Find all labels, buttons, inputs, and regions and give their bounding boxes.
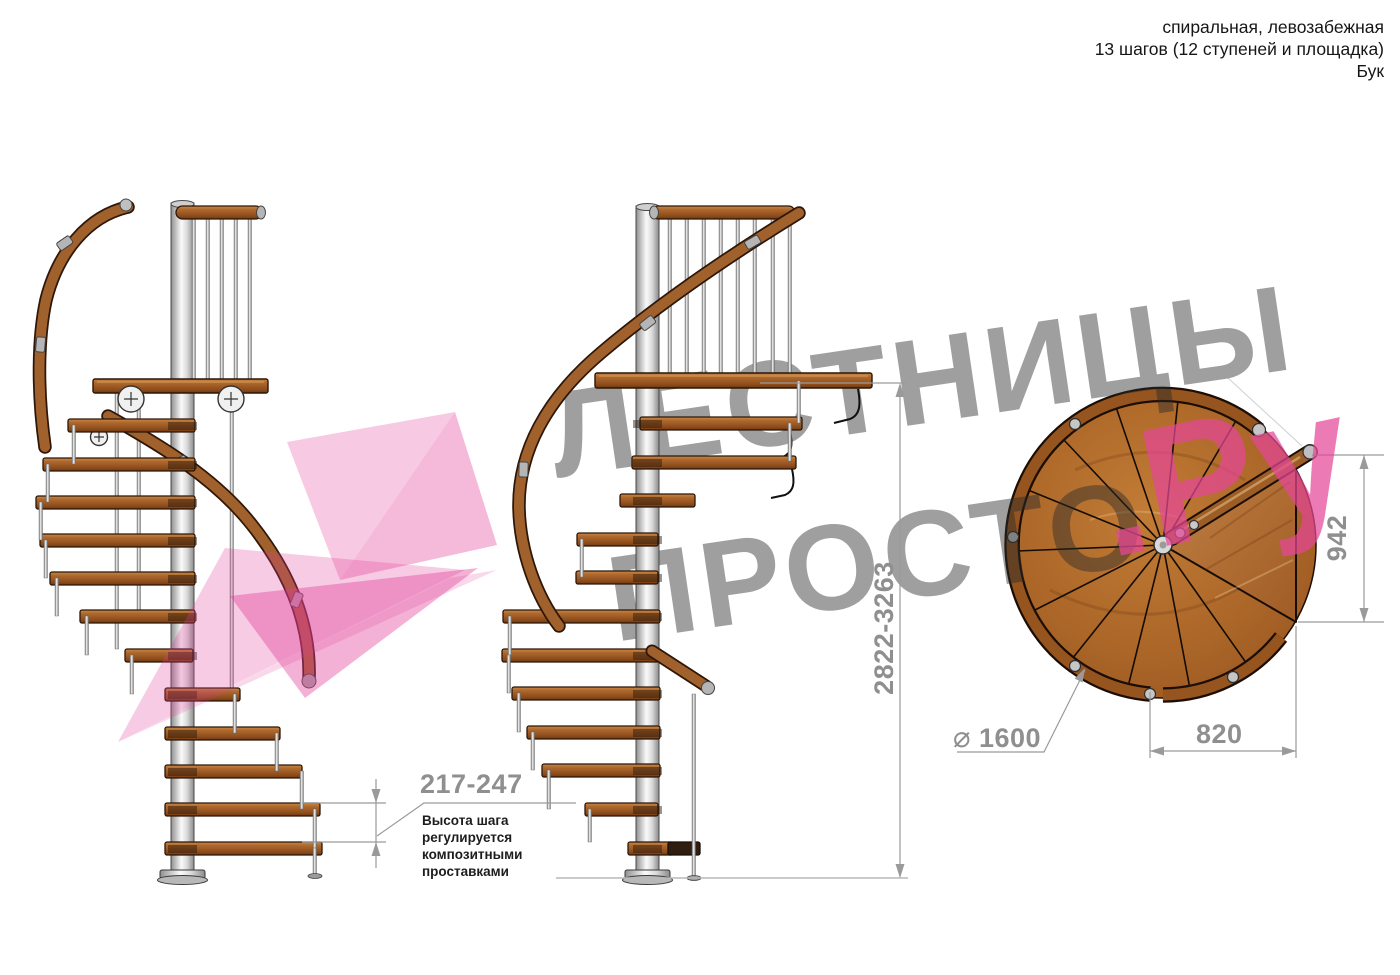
page: { "header": { "line1": "спиральная, лево… xyxy=(0,0,1400,975)
